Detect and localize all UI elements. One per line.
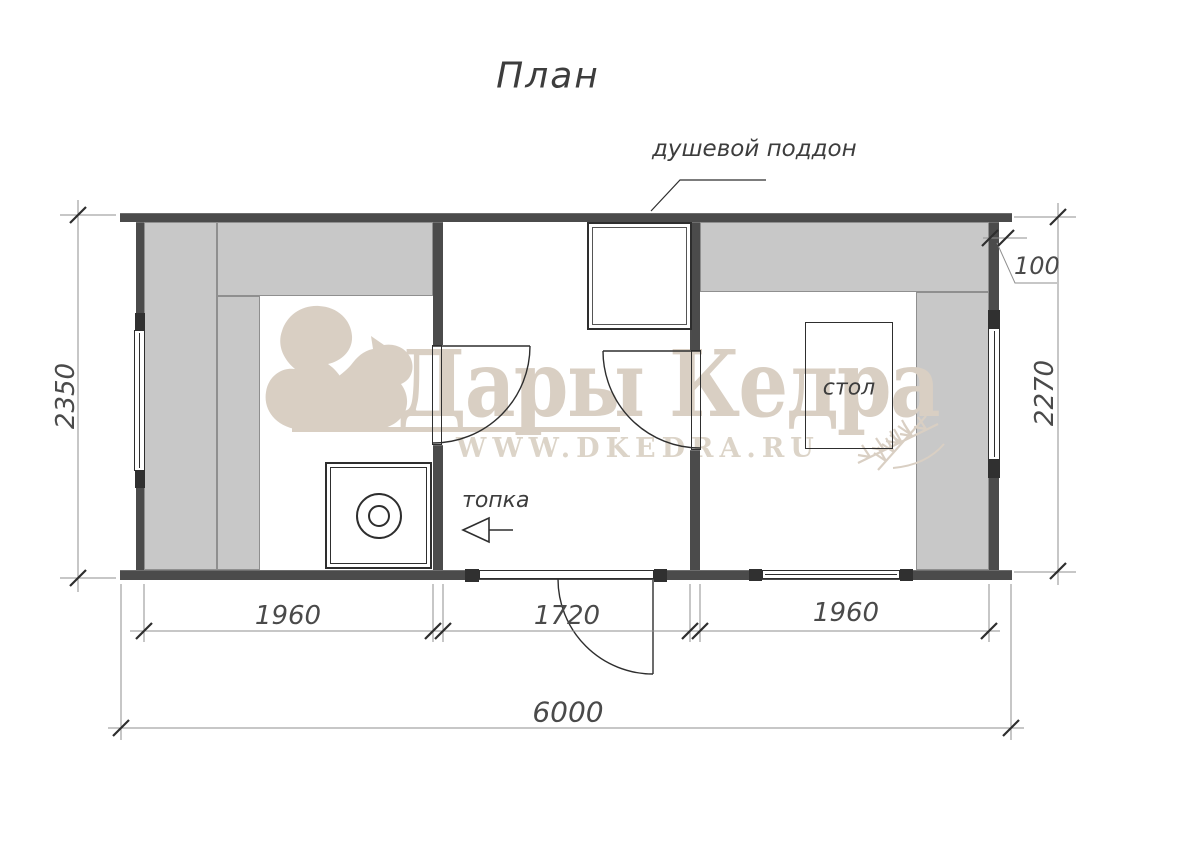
partition-left-upper <box>433 222 443 345</box>
dim-right-height: 2270 <box>1030 360 1060 426</box>
bench-rest-top <box>700 222 989 292</box>
dim-room-middle: 1720 <box>534 601 600 631</box>
shower-leader-line <box>651 180 766 211</box>
stove-ring-inner <box>368 505 390 527</box>
window-bottom-jamb-right <box>900 569 913 581</box>
plan-title: План <box>496 56 600 97</box>
table: стол <box>805 322 893 449</box>
shower-tray-inner <box>592 227 687 325</box>
bench-sauna-top <box>217 222 433 296</box>
partition-right-lower <box>690 450 700 570</box>
window-left-glazing <box>139 333 140 468</box>
partition-left-lower <box>433 445 443 570</box>
stove <box>325 462 432 569</box>
entrance-jamb-right <box>654 569 667 582</box>
window-right-jamb-top <box>988 310 1000 328</box>
squirrel-icon <box>266 306 413 430</box>
window-bottom-glazing <box>765 574 897 575</box>
firebox-label: топка <box>462 488 529 513</box>
dim-left-height: 2350 <box>51 363 81 429</box>
door-slab-right-partition <box>691 350 701 450</box>
dim-room-left: 1960 <box>255 601 321 631</box>
table-label: стол <box>823 376 875 401</box>
door-slab-left-partition <box>432 345 442 445</box>
entrance-jamb-left <box>465 569 479 582</box>
watermark-url: WWW.DKEDRA.RU <box>456 433 820 464</box>
window-right-glazing <box>994 331 995 457</box>
bench-sauna-lower <box>217 296 260 570</box>
window-left-jamb-top <box>135 313 145 330</box>
entrance-door-slab <box>479 570 654 579</box>
window-left-jamb-bottom <box>135 471 145 488</box>
window-right-jamb-bottom <box>988 460 1000 478</box>
shower-tray-label: душевой поддон <box>652 136 857 162</box>
bench-sauna-left <box>144 222 217 570</box>
dim-room-right: 1960 <box>813 598 879 628</box>
shower-tray <box>587 222 692 330</box>
dim-wall-thickness: 100 <box>1014 252 1060 280</box>
floor-plan-canvas: Дары Кедра WWW.DKEDRA.RU стол <box>0 0 1200 848</box>
dim-total-width: 6000 <box>532 696 603 729</box>
window-bottom-jamb-left <box>749 569 762 581</box>
firebox-arrow <box>463 518 513 542</box>
wall-top <box>120 213 1012 222</box>
